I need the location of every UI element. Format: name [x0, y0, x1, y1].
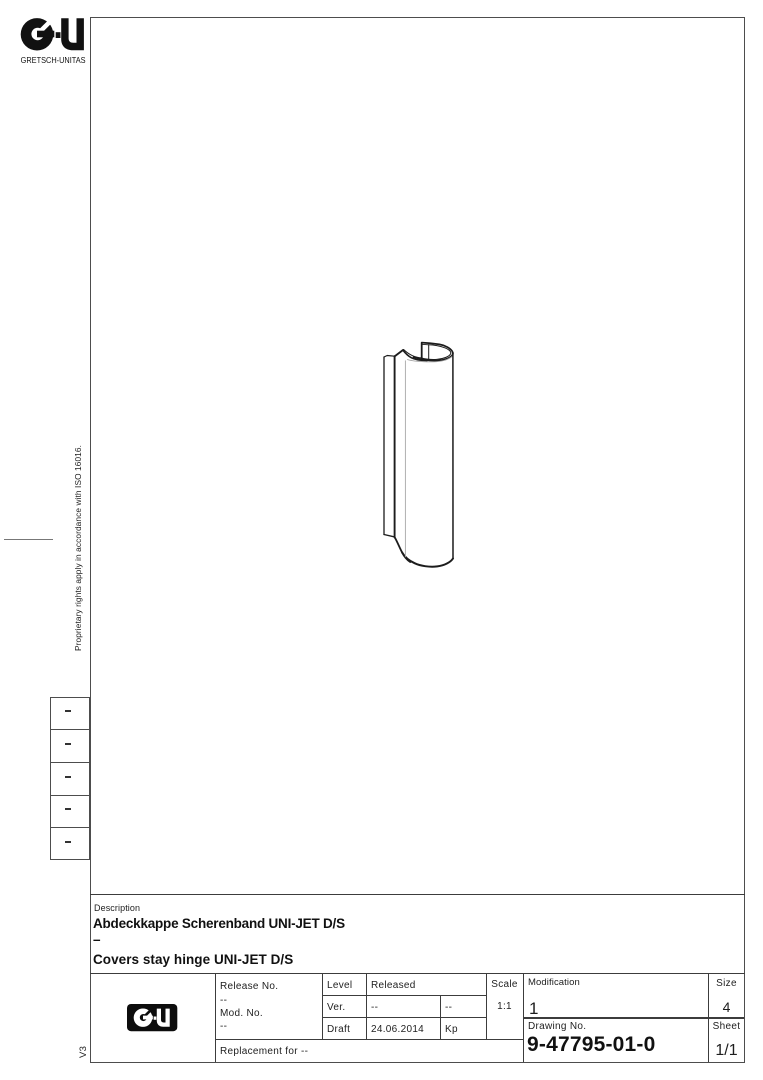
svg-text:GRETSCH-UNITAS: GRETSCH-UNITAS: [21, 55, 86, 65]
